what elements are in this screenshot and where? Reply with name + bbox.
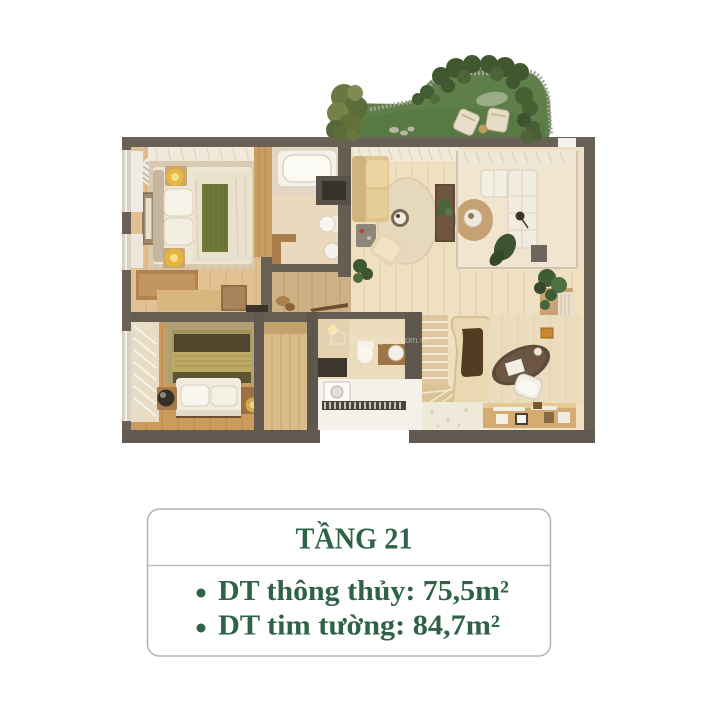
svg-text:TẦNG 21: TẦNG 21 xyxy=(296,520,413,556)
svg-text:Batdongsan.com.vn: Batdongsan.com.vn xyxy=(350,335,430,345)
svg-text:DT thông thủy: 75,5m²: DT thông thủy: 75,5m² xyxy=(218,575,509,607)
svg-text:DT tim tường: 84,7m²: DT tim tường: 84,7m² xyxy=(218,610,500,642)
